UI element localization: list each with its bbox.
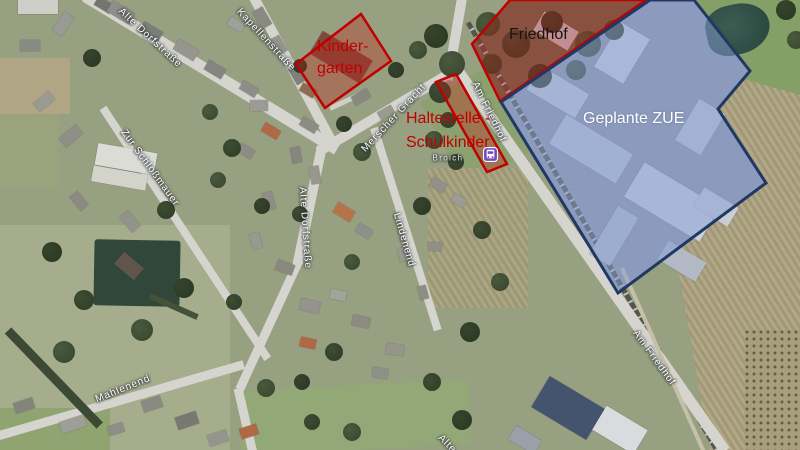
street-label: Alte Dorfstraße [116, 6, 184, 70]
street-label: Mahlenend [94, 373, 152, 405]
street-label: Am Friedhof [630, 328, 677, 387]
label-friedhof: Friedhof [509, 24, 568, 46]
street-label: Kapellenstraße [234, 7, 297, 74]
street-label: Alte [436, 433, 459, 450]
label-kindergarten: Kinder- garten [317, 36, 369, 80]
street-labels: Alte DorfstraßeKapellenstraßeZur Schloßm… [0, 0, 800, 450]
street-label: Zur Schloßmauer [118, 127, 181, 208]
street-label: Lindenend [391, 212, 417, 269]
aerial-map: Alte DorfstraßeKapellenstraßeZur Schloßm… [0, 0, 800, 450]
street-label: Alte Dorfstraße [297, 187, 314, 270]
label-haltestelle: Haltestelle - Schulkinder [406, 107, 490, 155]
label-zue: Geplante ZUE [583, 108, 684, 130]
bus-stop-icon [483, 147, 498, 162]
